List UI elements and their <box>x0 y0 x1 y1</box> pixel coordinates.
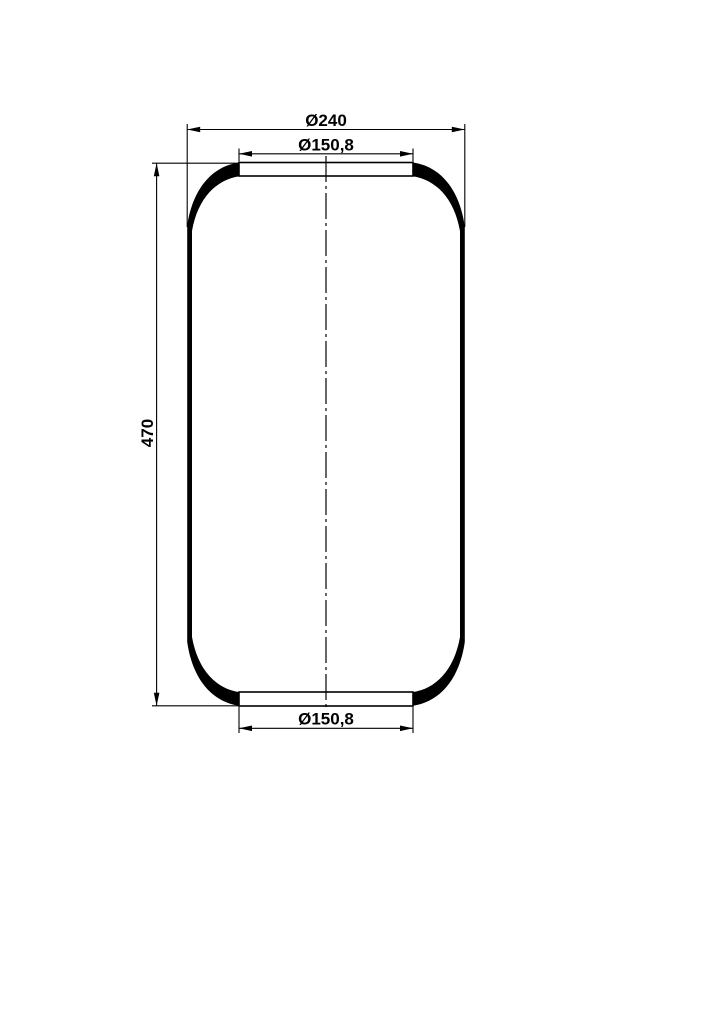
bellows-right-wall <box>413 163 465 706</box>
top-opening-diameter-label: Ø150,8 <box>298 136 354 155</box>
arrowhead-left-icon <box>239 151 252 157</box>
arrowhead-left-icon <box>187 127 200 133</box>
arrowhead-right-icon <box>400 726 413 732</box>
arrowhead-down-icon <box>154 693 160 706</box>
bellows-left-wall <box>187 163 239 706</box>
bottom-opening-diameter-label: Ø150,8 <box>298 710 354 729</box>
arrowhead-left-icon <box>239 726 252 732</box>
drawing-page: Ø240 Ø150,8 470 Ø150,8 <box>0 0 724 1024</box>
outer-diameter-label: Ø240 <box>305 111 347 130</box>
arrowhead-right-icon <box>452 127 465 133</box>
dimension-bottom-opening-diameter: Ø150,8 <box>239 707 413 733</box>
arrowhead-right-icon <box>400 151 413 157</box>
height-label: 470 <box>138 419 157 447</box>
arrowhead-up-icon <box>154 163 160 176</box>
bellows-technical-drawing: Ø240 Ø150,8 470 Ø150,8 <box>0 0 724 1024</box>
